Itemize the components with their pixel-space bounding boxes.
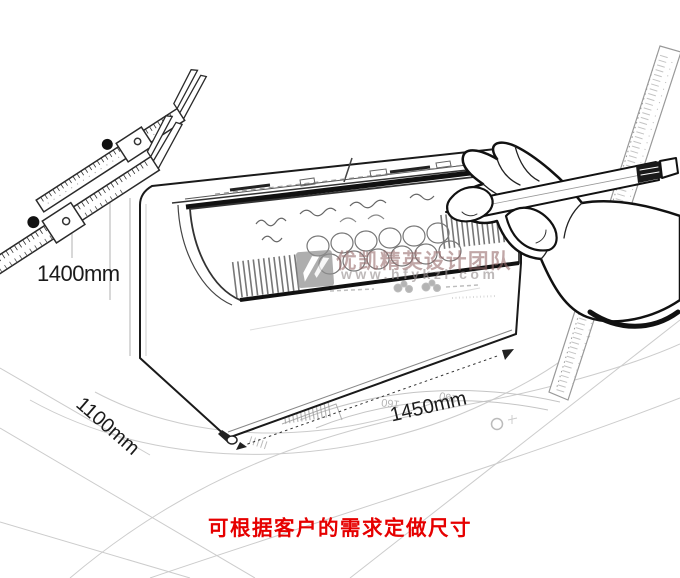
watermark-url-text: www.hfykzl.com: [341, 266, 498, 282]
watermark-logo: [296, 250, 334, 288]
sketch-canvas: 160 160: [0, 0, 680, 578]
product-dimension-illustration: 160 160: [0, 0, 680, 578]
pencil-eraser: [660, 158, 678, 178]
customization-caption: 可根据客户的需求定做尺寸: [208, 511, 472, 541]
height-dimension-label: 1400mm: [37, 261, 120, 287]
